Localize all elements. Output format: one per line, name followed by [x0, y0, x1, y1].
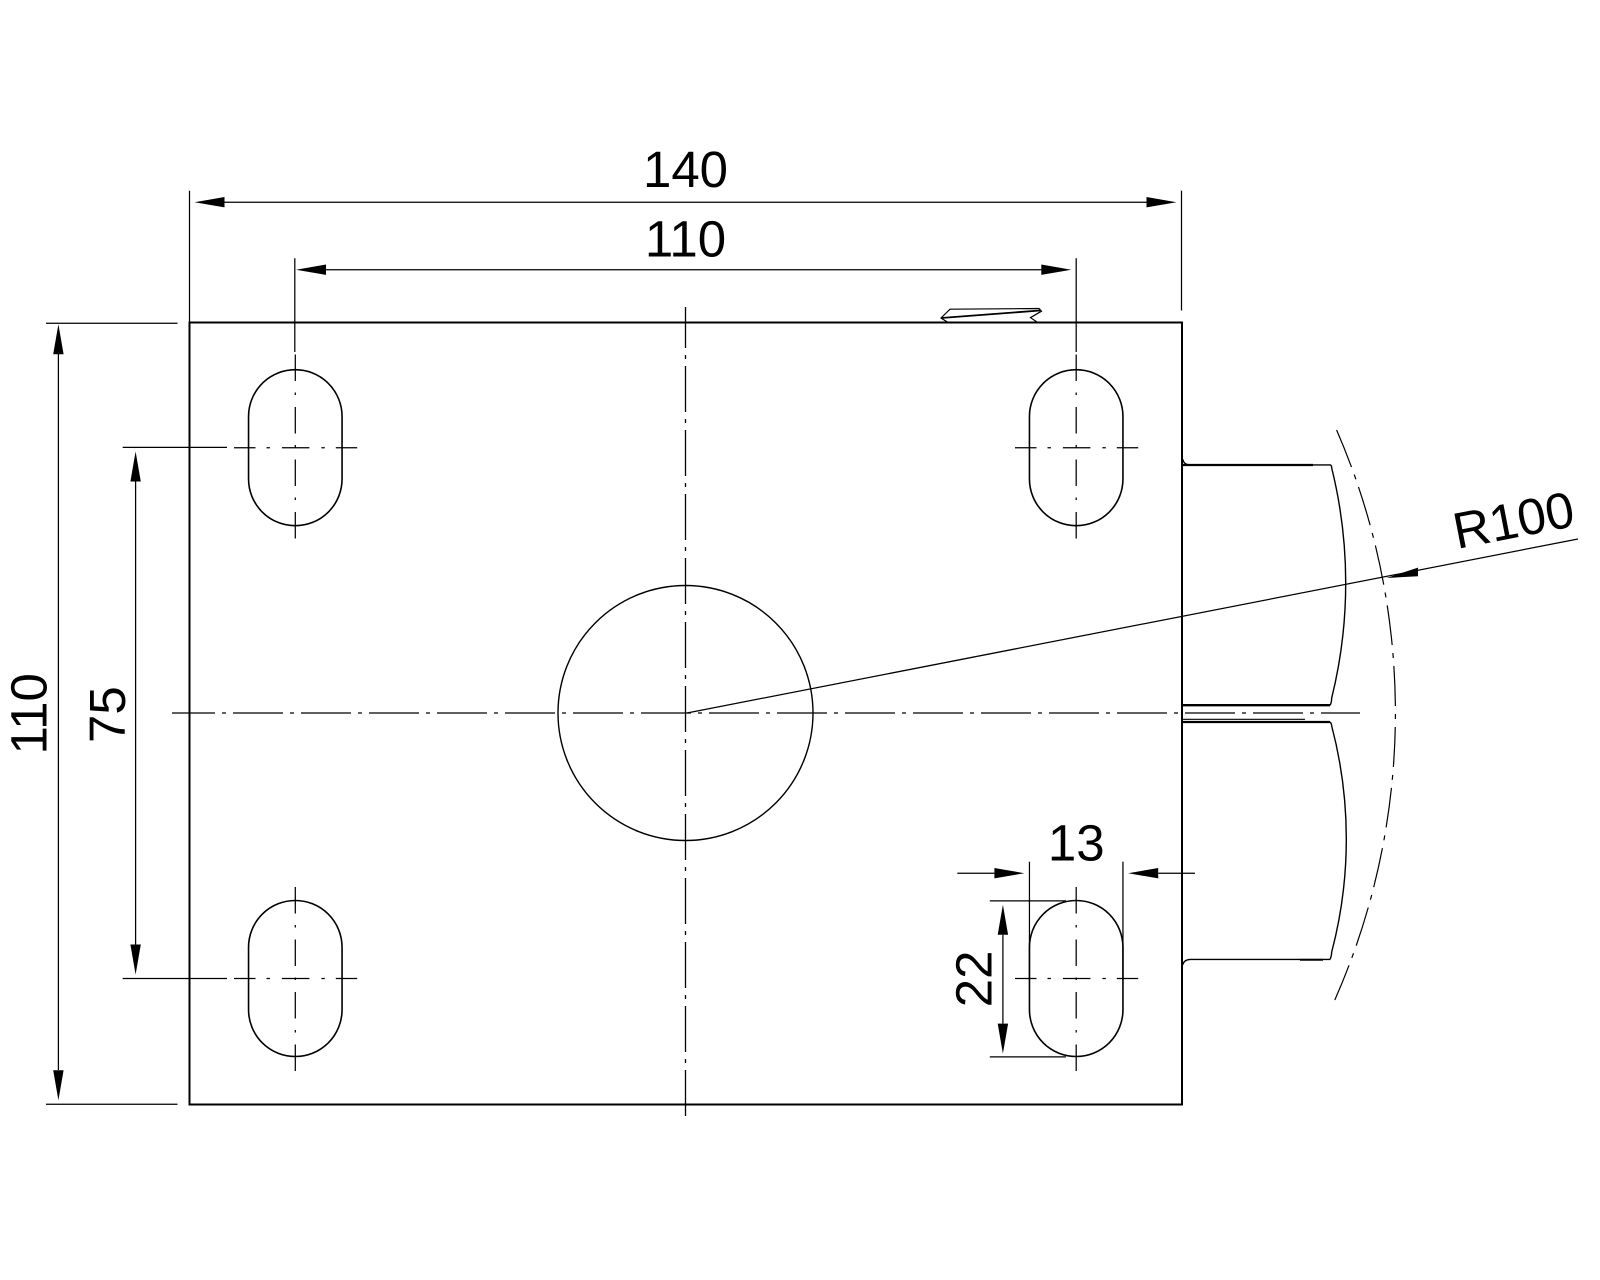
svg-text:75: 75 — [79, 686, 136, 743]
svg-text:22: 22 — [945, 951, 1002, 1008]
svg-text:110: 110 — [645, 211, 726, 268]
svg-text:110: 110 — [1, 673, 58, 754]
svg-text:13: 13 — [1048, 815, 1105, 872]
svg-text:140: 140 — [643, 141, 728, 198]
